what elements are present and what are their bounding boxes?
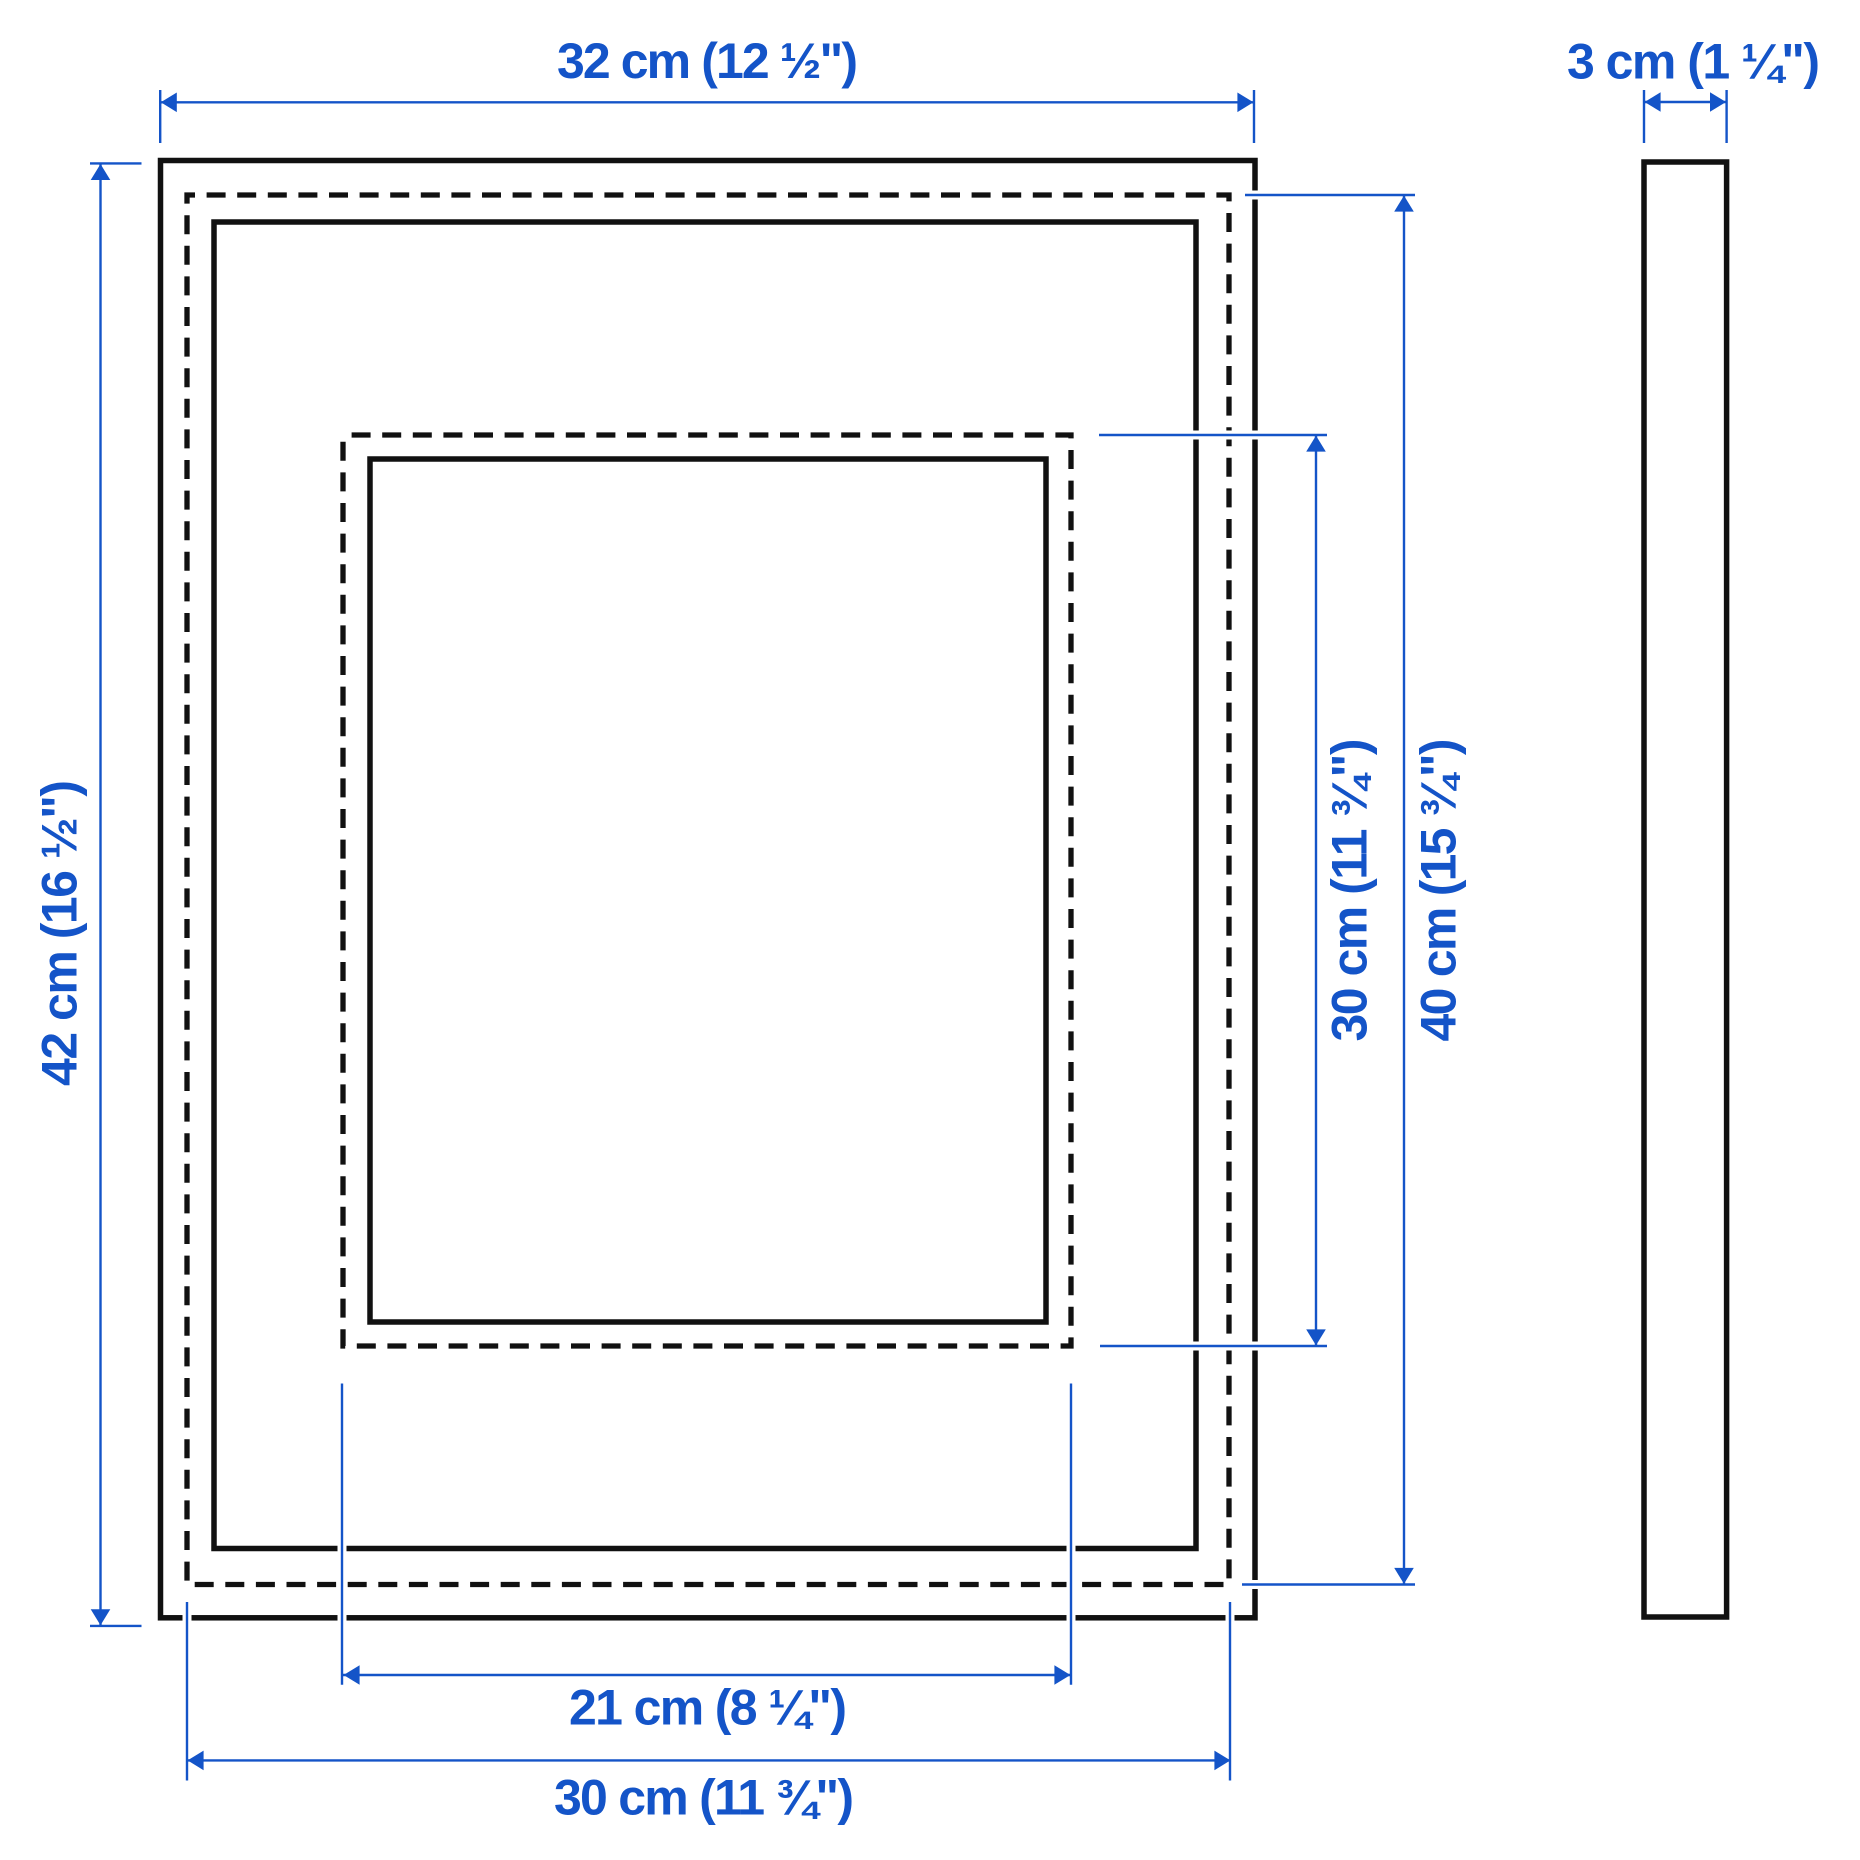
svg-text:3 cm (1 ¼"): 3 cm (1 ¼") <box>1567 34 1820 90</box>
svg-text:40 cm (15 ¾"): 40 cm (15 ¾") <box>1411 739 1467 1042</box>
svg-text:30 cm (11 ¾"): 30 cm (11 ¾") <box>554 1769 854 1825</box>
svg-text:42 cm (16 ½"): 42 cm (16 ½") <box>32 780 88 1086</box>
svg-text:21 cm (8 ¼"): 21 cm (8 ¼") <box>569 1679 847 1735</box>
svg-text:32 cm (12 ½"): 32 cm (12 ½") <box>557 33 858 89</box>
svg-text:30 cm (11 ¾"): 30 cm (11 ¾") <box>1322 739 1378 1042</box>
